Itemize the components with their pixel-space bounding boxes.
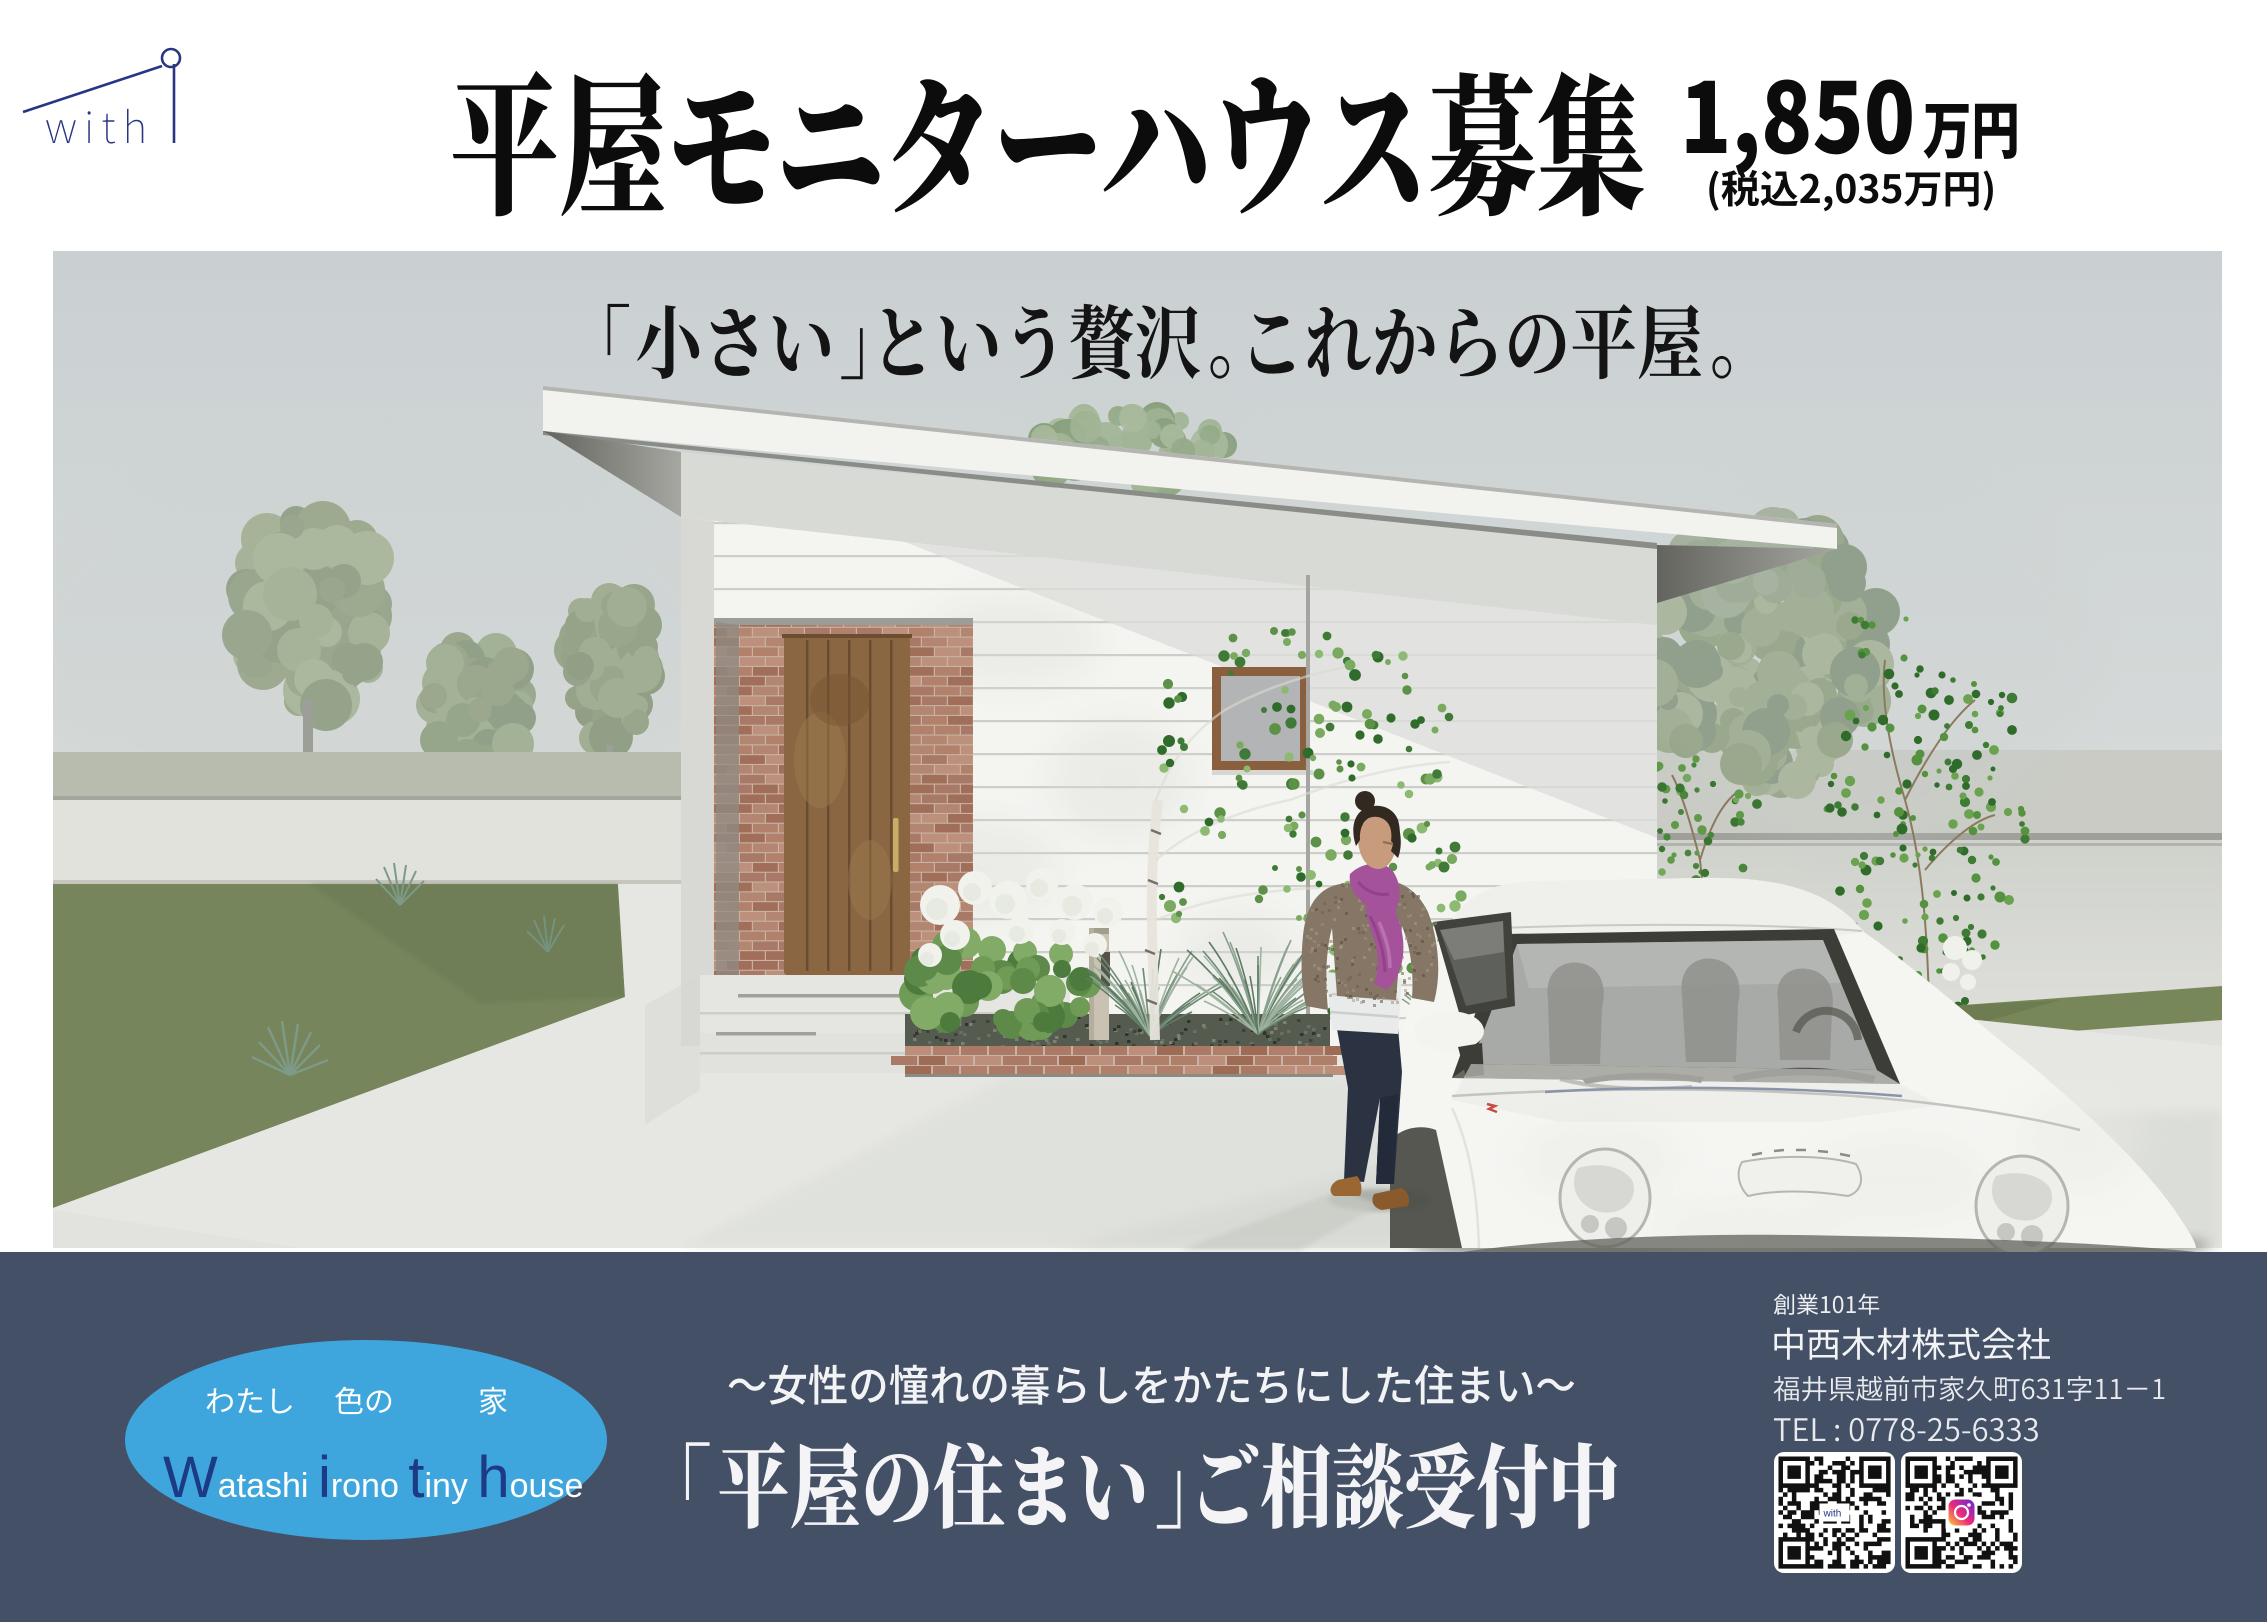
- svg-text:with: with: [1823, 1509, 1842, 1520]
